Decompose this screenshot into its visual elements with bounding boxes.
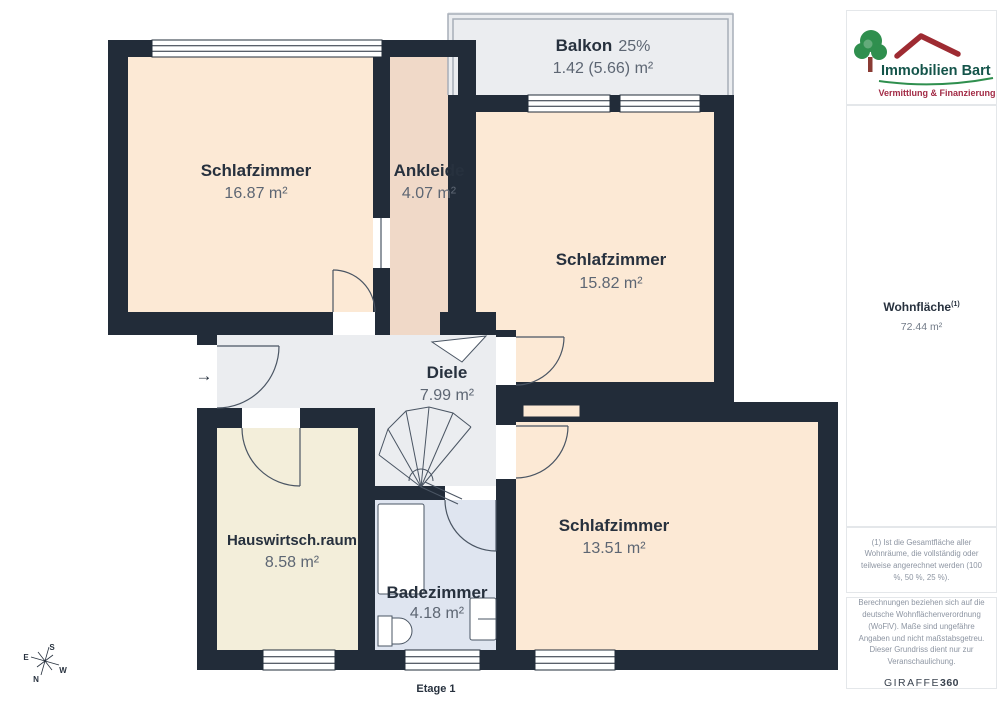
compass: S E W N <box>23 643 67 684</box>
label-schlafzimmer-3: Schlafzimmer <box>559 516 670 535</box>
area-ankleide: 4.07 m² <box>402 185 457 202</box>
giraffe360-brand: GIRAFFE360 <box>884 677 959 689</box>
room-schlafzimmer-3 <box>516 422 818 650</box>
shower <box>378 504 424 594</box>
label-diele: Diele <box>427 363 468 382</box>
area-schlafzimmer-1: 16.87 m² <box>224 185 288 202</box>
label-hauswirtschaftsraum: Hauswirtsch.raum <box>227 532 357 549</box>
floorplan-page: → Schlafzimmer 16.87 m² Ankleide 4.07 m²… <box>0 0 1000 707</box>
compass-s: S <box>49 643 55 652</box>
area-hauswirtschaftsraum: 8.58 m² <box>265 554 320 571</box>
area-balkon: 1.42 (5.66) m² <box>553 60 654 77</box>
area-badezimmer: 4.18 m² <box>410 605 465 622</box>
room-diele-stairwell <box>375 410 496 486</box>
label-badezimmer: Badezimmer <box>386 583 487 602</box>
footnote-card: (1) Ist die Gesamtfläche aller Wohnräume… <box>846 527 997 593</box>
label-balkon: Balkon25% <box>556 36 651 55</box>
radiator <box>523 405 580 417</box>
disclaimer-text: Berechnungen beziehen sich auf die deuts… <box>857 597 986 667</box>
label-schlafzimmer-1: Schlafzimmer <box>201 161 312 180</box>
living-area-value: 72.44 m² <box>901 321 942 333</box>
label-schlafzimmer-2: Schlafzimmer <box>556 250 667 269</box>
area-schlafzimmer-2: 15.82 m² <box>579 275 643 292</box>
toilet-tank <box>378 616 392 646</box>
compass-n: N <box>33 675 39 684</box>
floor-label: Etage 1 <box>416 683 455 695</box>
logo-card: Immobilien Bart Vermittlung & Finanzieru… <box>846 10 997 105</box>
agency-logo: Immobilien Bart Vermittlung & Finanzieru… <box>847 11 996 104</box>
living-area-card: Wohnfläche(1) 72.44 m² <box>846 105 997 527</box>
floor-plan: → Schlafzimmer 16.87 m² Ankleide 4.07 m²… <box>0 0 845 707</box>
label-ankleide: Ankleide <box>394 161 465 180</box>
footnote-marker: (1) <box>951 301 960 308</box>
compass-w: W <box>59 666 67 675</box>
disclaimer-card: Berechnungen beziehen sich auf die deuts… <box>846 597 997 689</box>
logo-title: Immobilien Bart <box>881 63 991 79</box>
area-diele: 7.99 m² <box>420 387 475 404</box>
logo-subtitle: Vermittlung & Finanzierung <box>878 88 995 98</box>
roof-icon <box>897 36 958 56</box>
compass-e: E <box>23 653 29 662</box>
living-area-label: Wohnfläche(1) <box>883 300 959 314</box>
entrance-arrow: → <box>196 366 213 385</box>
footnote-text: (1) Ist die Gesamtfläche aller Wohnräume… <box>857 537 986 584</box>
area-schlafzimmer-3: 13.51 m² <box>582 540 646 557</box>
